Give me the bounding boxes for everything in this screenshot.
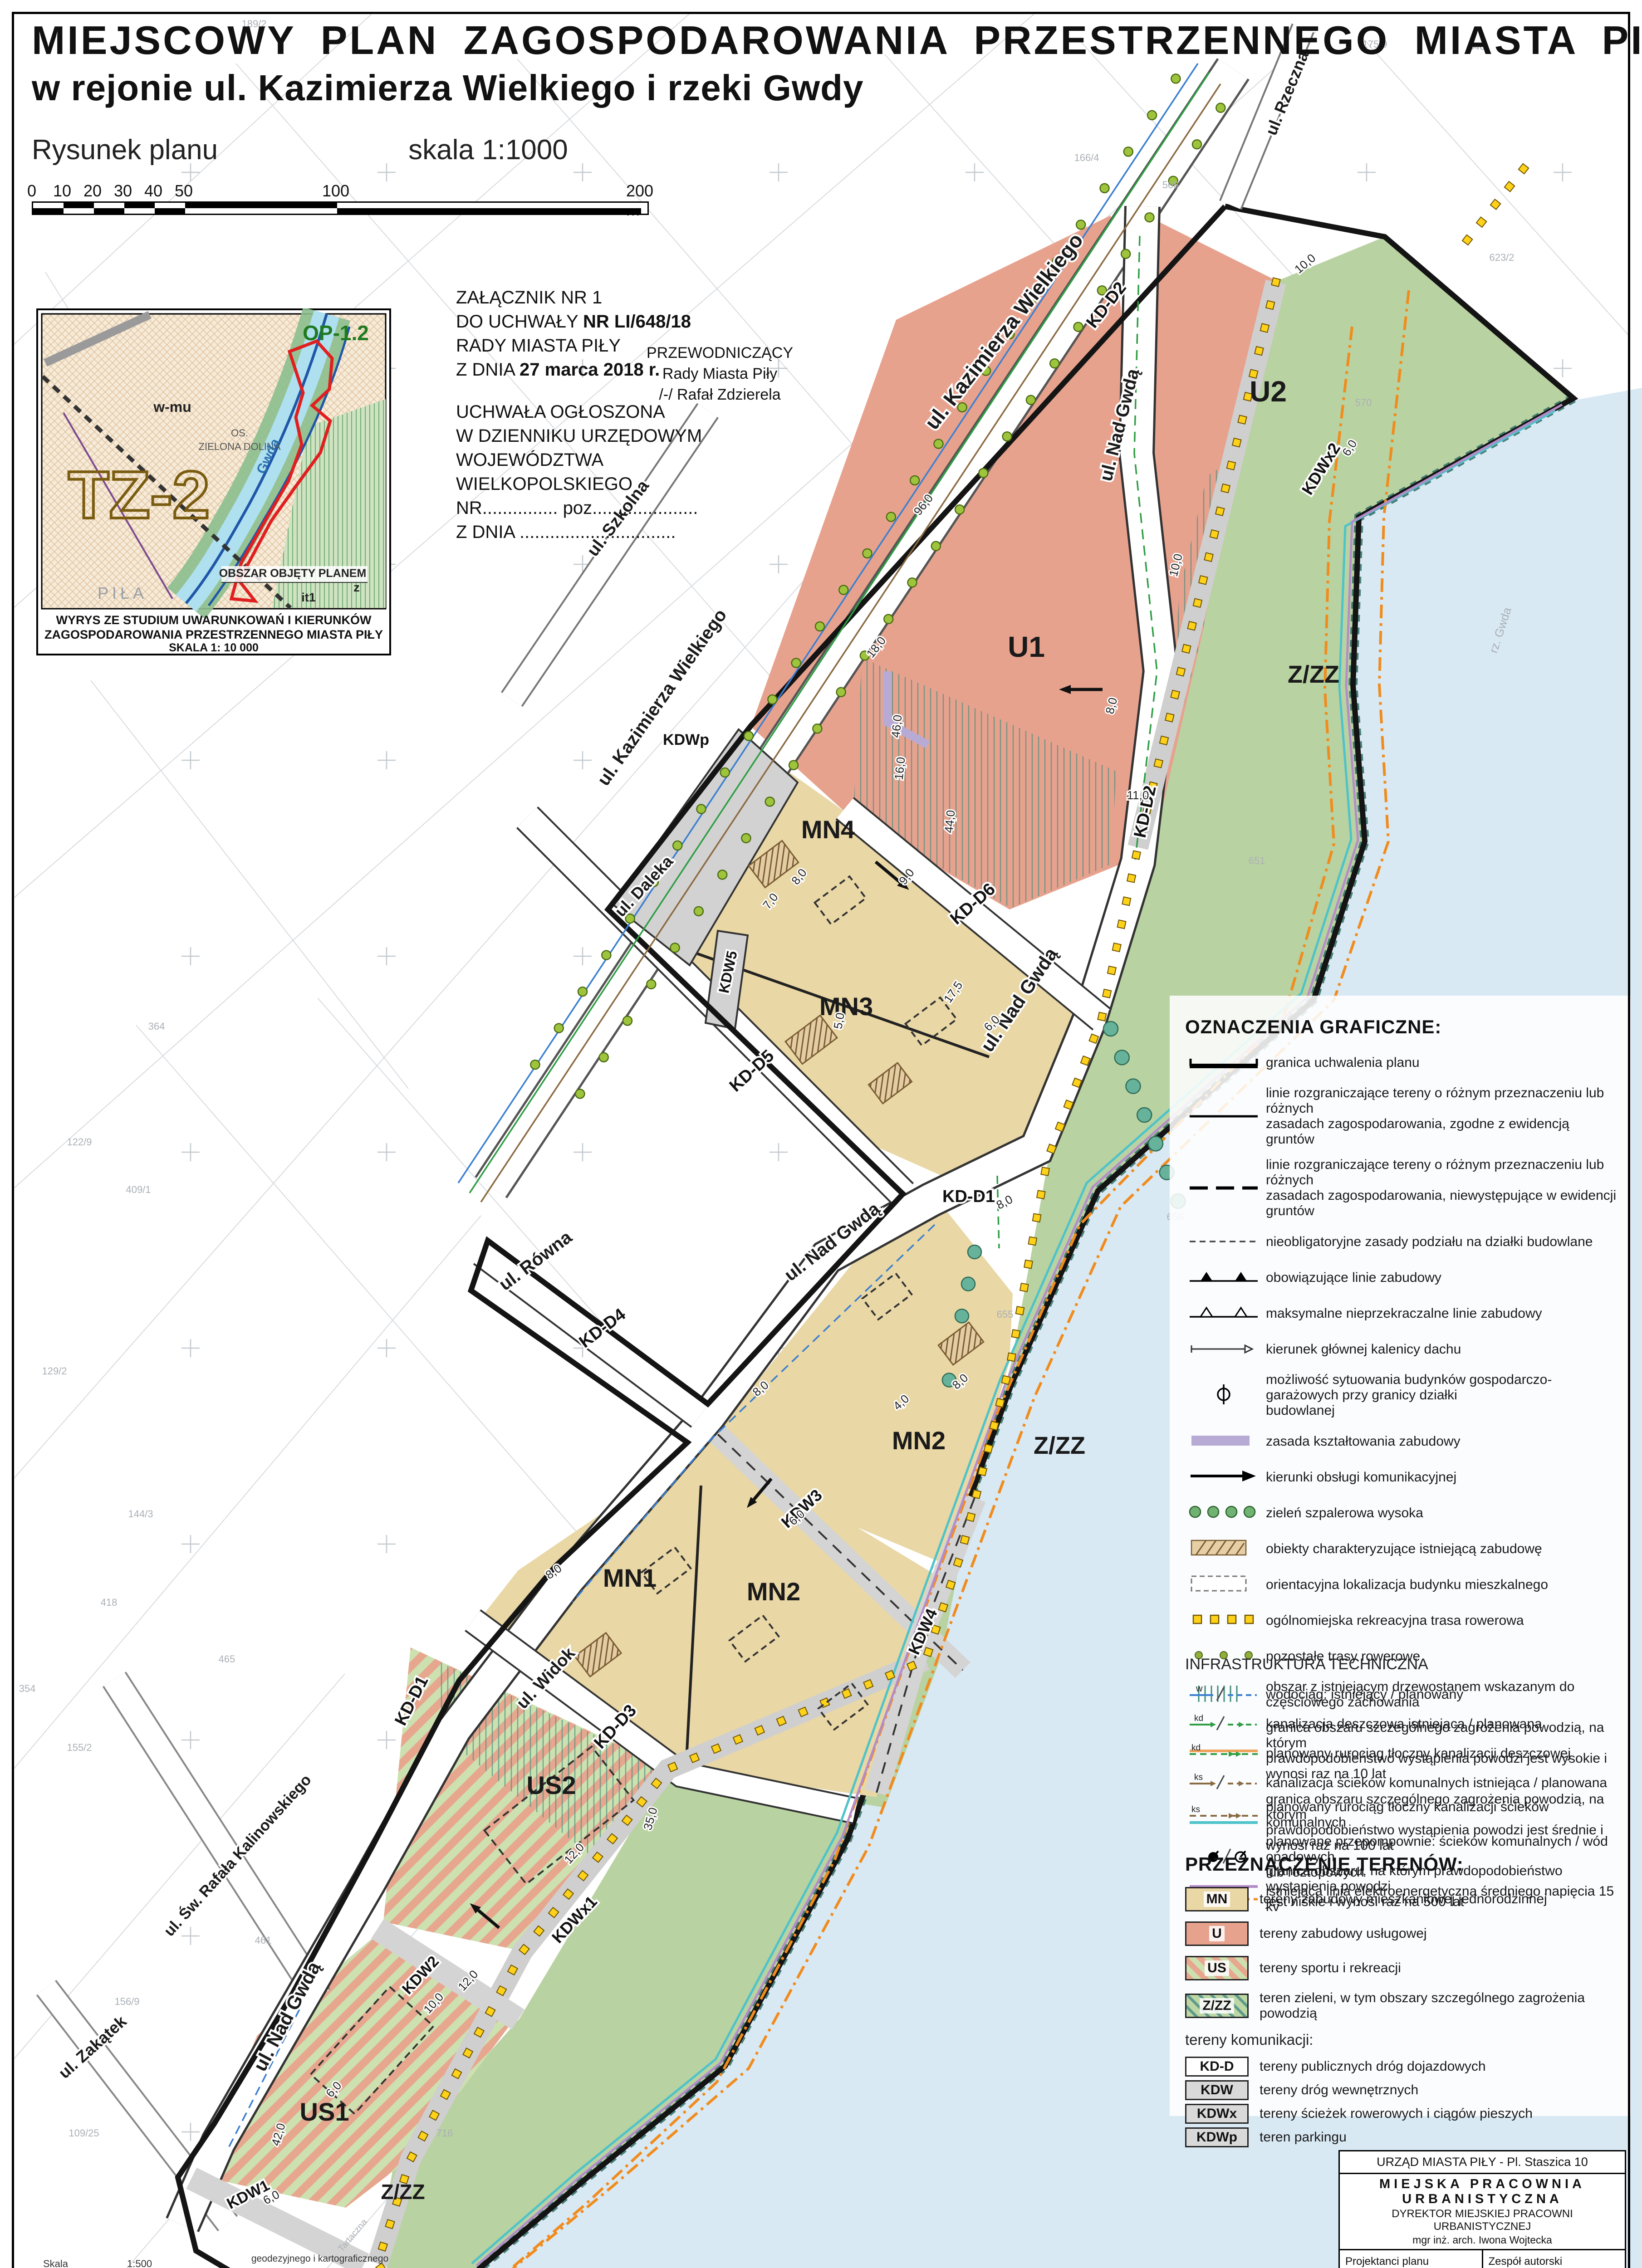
legend-dest-label: tereny zabudowy mieszkaniowej jednorodzi… [1260,1892,1547,1907]
map-label: 570 [1355,397,1372,408]
legend-item-label: ogólnomiejska rekreacyjna trasa rowerowa [1266,1613,1524,1628]
map-label: 144/3 [128,1508,153,1520]
map-label: US2 [527,1771,576,1799]
legend-item-label: linie rozgraniczające tereny o różnym pr… [1266,1157,1621,1219]
attachment-line: DO UCHWAŁY NR LI/648/18 [456,310,702,334]
legend-item-label: granica uchwalenia planu [1266,1055,1420,1070]
legend-item: linie rozgraniczające tereny o różnym pr… [1185,1085,1621,1147]
legend-dest-items: MN tereny zabudowy mieszkaniowej jednoro… [1185,1887,1621,2021]
legend-dest-label: tereny zabudowy usługowej [1260,1926,1427,1941]
legend-item-label: obiekty charakteryzujące istniejącą zabu… [1266,1541,1542,1557]
drawing-caption: Rysunek planuskala 1:1000 [32,134,568,166]
comm_arrow-symbol [1185,1464,1266,1490]
stamp-row: Skala1:500 [43,2258,238,2268]
inset-label: SKALA 1: 10 000 [169,641,259,654]
ks_press-symbol: ks [1185,1802,1266,1828]
map-label: 122/9 [67,1136,92,1148]
study-inset-map: OP-1.2w-muOS.ZIELONA DOLINATZ-2GwdaPIŁAO… [36,308,391,655]
credits-right-title: Zespół autorski [1489,2255,1620,2268]
inset-label: z [353,581,360,594]
scale-tick: 20 [83,181,102,200]
map-label: 465 [219,1653,235,1665]
map-label: Z/ZZ [381,2180,425,2204]
page-title: MIEJSCOWY PLAN ZAGOSPODAROWANIA PRZESTRZ… [32,17,1642,64]
legend-item: obiekty charakteryzujące istniejącą zabu… [1185,1536,1621,1562]
scale-tick: 40 [144,181,162,200]
ks_line-symbol: ks [1185,1770,1266,1796]
road-swatch-KDW: KDW [1185,2080,1249,2100]
legend-item: ks kanalizacja ścieków komunalnych istni… [1185,1770,1621,1796]
road-swatch-KDWx: KDWx [1185,2104,1249,2124]
approx_bld-symbol [1185,1572,1266,1598]
legend-infra-title: INFRASTRUKTURA TECHNICZNA [1185,1656,1621,1673]
svg-text:w: w [1196,1684,1203,1694]
page-subtitle: w rejonie ul. Kazimierza Wielkiego i rze… [32,67,863,109]
credits-office: URZĄD MIASTA PIŁY - Pl. Staszica 10 [1340,2151,1625,2174]
legend-item: kd kanalizacja deszczowa istniejąca / pl… [1185,1711,1621,1737]
chairman-line: Rady Miasta Piły [647,363,793,384]
inset-label: ZAGOSPODAROWANIA PRZESTRZENNEGO MIASTA P… [44,628,383,641]
svg-text:kd: kd [1191,1743,1201,1753]
credits-director-name: mgr inż. arch. Iwona Wojtecka [1342,2234,1623,2246]
attachment-line: W DZIENNIKU URZĘDOWYM [456,424,702,448]
map-label: 354 [19,1683,36,1694]
map-label: Z/ZZ [1034,1432,1085,1459]
legend-dest-item: MN tereny zabudowy mieszkaniowej jednoro… [1185,1887,1621,1911]
map-label: U2 [1250,375,1287,408]
drawing-label: Rysunek planu [32,134,218,166]
legend-road-item: KDW tereny dróg wewnętrznych [1185,2080,1621,2100]
legend-road-items: KD-D tereny publicznych dróg dojazdowych… [1185,2057,1621,2147]
legend-dest-item: U tereny zabudowy usługowej [1185,1921,1621,1946]
chairman-line: PRZEWODNICZĄCY [647,342,793,363]
scale-tick: 30 [114,181,132,200]
legend-destinations: PRZEZNACZENIE TERENÓW: MN tereny zabudow… [1185,1853,1621,2151]
map-label: MN2 [892,1426,946,1455]
legend-item-label: możliwość sytuowania budynków gospodarcz… [1266,1372,1621,1418]
map-label: MN4 [801,815,855,844]
garage-symbol [1185,1383,1266,1408]
legend-item: orientacyjna lokalizacja budynku mieszka… [1185,1572,1621,1598]
legend-item-label: obowiązujące linie zabudowy [1266,1270,1441,1286]
inset-label: PIŁA [98,584,147,602]
legend-title: OZNACZENIA GRAFICZNE: [1185,1016,1621,1038]
road-swatch-KDWp: KDWp [1185,2127,1249,2147]
zone-swatch-U: U [1185,1921,1249,1946]
map-label: 623/2 [1489,252,1514,263]
map-label: 655 [997,1309,1014,1320]
scale-tick: 0 [27,181,36,200]
map-label: 5,0 [831,1012,847,1030]
map-label: 418 [101,1597,118,1608]
bld_open-symbol [1185,1300,1266,1326]
kd_press-symbol: kd [1185,1740,1266,1766]
inset-label: OBSZAR OBJĘTY PLANEM [219,567,367,580]
legend-item: nieobligatoryjne zasady podziału na dzia… [1185,1229,1621,1255]
zone-swatch-Z/ZZ: Z/ZZ [1185,1994,1249,2018]
stamp-attributes: Skala1:500Województwo:wielkopolskiePowia… [43,2258,238,2268]
map-label: 716 [436,2127,453,2139]
boundary-symbol [1185,1050,1266,1075]
legend-item-label: planowany rurociąg tłoczny kanalizacji ś… [1266,1799,1621,1830]
legend-dest-label: tereny sportu i rekreacji [1260,1960,1401,1976]
scale-bar-graphic [32,201,649,215]
map-label: 16,0 [892,756,907,780]
legend-item: granica uchwalenia planu [1185,1050,1621,1075]
ridge-symbol [1185,1336,1266,1362]
map-label: 44,0 [941,809,957,833]
map-label: 166/4 [1074,152,1099,163]
chairman-line: /-/ Rafał Zdzierela [647,384,793,405]
inset-label: OP-1.2 [303,321,369,345]
legend-item-label: maksymalne nieprzekraczalne linie zabudo… [1266,1306,1542,1321]
map-label: 155/2 [67,1742,92,1753]
legend-item: obowiązujące linie zabudowy [1185,1265,1621,1290]
bike_y-symbol [1185,1608,1266,1633]
legend-dest-item: Z/ZZ teren zieleni, w tym obszary szczeg… [1185,1990,1621,2021]
map-label: KD-D1 [942,1187,995,1206]
svg-text:ks: ks [1194,1773,1203,1782]
attachment-note: ZAŁĄCZNIK NR 1DO UCHWAŁY NR LI/648/18RAD… [456,286,702,544]
line_solid-symbol [1185,1104,1266,1129]
map-label: MN2 [747,1577,800,1606]
legend-item-label: linie rozgraniczające tereny o różnym pr… [1266,1085,1621,1147]
chairman-note: PRZEWODNICZĄCYRady Miasta Piły/-/ Rafał … [647,342,793,405]
attachment-line: WOJEWÓDZTWA [456,448,702,472]
map-label: US1 [300,2097,349,2126]
legend-item: kierunki obsługi komunikacyjnej [1185,1464,1621,1490]
legend-item: ogólnomiejska rekreacyjna trasa rowerowa [1185,1608,1621,1633]
inset-label: OS. [231,427,248,439]
legend-item: kierunek głównej kalenicy dachu [1185,1336,1621,1362]
attachment-line: Z DNIA ............................... [456,520,702,544]
stamp-line: STAROSTA PILSKI [225,2266,415,2268]
scale-bar: 01020304050100200 m [32,181,649,215]
map-label: 409/1 [126,1184,151,1195]
legend-dest-item: US tereny sportu i rekreacji [1185,1956,1621,1980]
legend-item: zasada kształtowania zabudowy [1185,1428,1621,1454]
trees4-symbol [1185,1500,1266,1526]
dash_long-symbol [1185,1175,1266,1201]
legend-dest-title: PRZEZNACZENIE TERENÓW: [1185,1853,1621,1875]
inset-label: it1 [301,591,316,604]
scale-bar-ticks: 01020304050100200 m [32,181,649,201]
scale-tick: 100 [322,181,349,200]
credits-studio-name: MIEJSKA PRACOWNIA URBANISTYCZNA [1342,2177,1623,2207]
map-label: 461 [255,1935,272,1946]
stamp-certificate: geodezyjnego i kartograficznegoSTAROSTA … [225,2253,415,2268]
bld_filled-symbol [1185,1265,1266,1290]
inset-label: TZ-2 [68,458,210,533]
legend-item-label: wodociąg: istniejący / planowany [1266,1687,1463,1702]
legend-road-label: tereny publicznych dróg dojazdowych [1260,2059,1486,2074]
credits-director-title: DYREKTOR MIEJSKIEJ PRACOWNI URBANISTYCZN… [1342,2208,1623,2233]
exist_bld-symbol [1185,1536,1266,1562]
svg-text:kd: kd [1194,1714,1203,1723]
map-label: 46,0 [888,714,904,738]
legend-item-label: planowany rurociąg tłoczny kanalizacji d… [1266,1746,1571,1761]
credits-box: URZĄD MIASTA PIŁY - Pl. Staszica 10 MIEJ… [1338,2150,1626,2268]
legend-item: ks planowany rurociąg tłoczny kanalizacj… [1185,1799,1621,1830]
credits-authors: Zespół autorskimgr inż. Piotr Stróżyński… [1483,2250,1625,2268]
legend-item-label: kanalizacja ścieków komunalnych istnieją… [1266,1775,1607,1791]
legend-item: zieleń szpalerowa wysoka [1185,1500,1621,1526]
map-label: Z/ZZ [1288,661,1339,688]
legend-road-item: KD-D tereny publicznych dróg dojazdowych [1185,2057,1621,2077]
attachment-line: WIELKOPOLSKIEGO [456,472,702,496]
legend-road-label: tereny ścieżek rowerowych i ciągów piesz… [1260,2106,1533,2121]
inset-label: w-mu [153,399,191,415]
road-swatch-KD-D: KD-D [1185,2057,1249,2077]
credits-studio: MIEJSKA PRACOWNIA URBANISTYCZNA DYREKTOR… [1340,2174,1625,2250]
dash_small-symbol [1185,1229,1266,1255]
legend-road-item: KDWx tereny ścieżek rowerowych i ciągów … [1185,2104,1621,2124]
legend-item-label: zasada kształtowania zabudowy [1266,1434,1461,1449]
legend-item-label: orientacyjna lokalizacja budynku mieszka… [1266,1577,1548,1593]
map-label: 651 [1249,855,1265,866]
stamp-line: geodezyjnego i kartograficznego [225,2253,415,2264]
map-label: 156/9 [114,1996,139,2007]
legend-item: linie rozgraniczające tereny o różnym pr… [1185,1157,1621,1219]
svg-text:ks: ks [1191,1805,1200,1814]
map-label: 568 [1162,179,1179,191]
shaping-symbol [1185,1428,1266,1454]
plan-sheet: ul. Kazimierza Wielkiegoul. Kazimierza W… [0,0,1642,2268]
scale-label: skala 1:1000 [408,134,568,166]
scale-tick: 10 [53,181,71,200]
legend-road-label: teren parkingu [1260,2130,1347,2145]
scale-tick: 50 [175,181,193,200]
map-label: 364 [148,1021,165,1032]
legend-item-label: nieobligatoryjne zasady podziału na dzia… [1266,1234,1593,1250]
map-label: KDWp [663,731,709,748]
legend-road-item: KDWp teren parkingu [1185,2127,1621,2147]
inset-label: WYRYS ZE STUDIUM UWARUNKOWAŃ I KIERUNKÓW [56,613,372,627]
zone-swatch-MN: MN [1185,1887,1249,1911]
map-label: 129/2 [42,1365,67,1377]
legend-item-label: kierunki obsługi komunikacyjnej [1266,1470,1456,1485]
w_line-symbol: w [1185,1681,1266,1707]
legend-road-label: tereny dróg wewnętrznych [1260,2082,1418,2098]
legend-item-label: zieleń szpalerowa wysoka [1266,1505,1423,1521]
legend-item-label: kierunek głównej kalenicy dachu [1266,1342,1461,1357]
map-label: MN1 [603,1564,657,1592]
legend-dest-label: teren zieleni, w tym obszary szczególneg… [1260,1990,1621,2021]
legend-item: kd planowany rurociąg tłoczny kanalizacj… [1185,1740,1621,1766]
legend-item: możliwość sytuowania budynków gospodarcz… [1185,1372,1621,1418]
legend-item-label: kanalizacja deszczowa istniejąca / plano… [1266,1716,1542,1732]
map-label: 11,0 [1127,788,1149,802]
kd_line-symbol: kd [1185,1711,1266,1737]
legend-item: maksymalne nieprzekraczalne linie zabudo… [1185,1300,1621,1326]
zone-swatch-US: US [1185,1956,1249,1980]
legend-item: w wodociąg: istniejący / planowany [1185,1681,1621,1707]
legend-roads-title: tereny komunikacji: [1185,2031,1621,2048]
credits-left-title: Projektanci planu [1345,2255,1476,2268]
credits-designers: Projektanci planumgr inż. arch. Iwona Wo… [1340,2250,1483,2268]
map-label: 109/25 [69,2127,99,2139]
attachment-line: ZAŁĄCZNIK NR 1 [456,286,702,310]
attachment-line: NR............... poz...................… [456,496,702,520]
map-label: U1 [1008,631,1045,663]
